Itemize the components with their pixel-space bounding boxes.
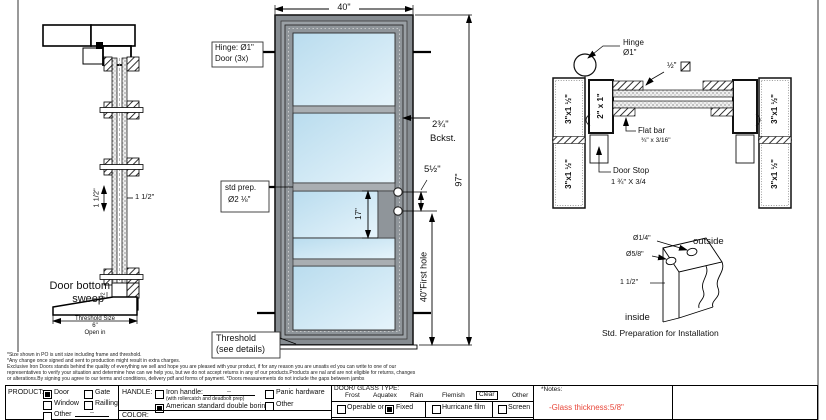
checkbox-iron-handle[interactable] — [155, 390, 164, 399]
handle-option-panic[interactable]: Panic hardware — [276, 389, 325, 396]
hinge-note-line2: Door (3x) — [215, 55, 248, 63]
checkbox-railing[interactable] — [84, 401, 93, 410]
product-option-other[interactable]: Other — [54, 411, 72, 418]
glass-subcell-divider — [425, 401, 426, 417]
checkbox-operable[interactable] — [337, 405, 346, 414]
hinge-dia: Ø1" — [623, 49, 637, 57]
side-dim: 1 1/2" — [135, 193, 154, 201]
frame-size-label: 3"x1 ½" — [565, 94, 573, 124]
handle-label: HANDLE: — [122, 389, 152, 396]
threshold-size-value: 6" — [55, 323, 135, 329]
backset-value: 2¾" — [432, 120, 449, 130]
door-stop-label: Door Stop — [613, 167, 649, 175]
glass-row-divider — [331, 401, 534, 402]
checkbox-panic-hardware[interactable] — [265, 390, 274, 399]
front-view — [212, 5, 472, 358]
width-dim: 40" — [330, 3, 358, 12]
hurricane-film-label[interactable]: Hurricane film — [442, 404, 485, 411]
glass-option-clear-selected[interactable]: Clear — [476, 391, 498, 400]
disclaimer-line: or alterations.By signing you agree to o… — [7, 377, 364, 383]
square-bar-size: ½" — [667, 62, 677, 70]
empty-cell — [672, 385, 818, 420]
checkbox-gate[interactable] — [84, 390, 93, 399]
glass-bottom-divider — [331, 417, 534, 418]
product-label: PRODUCT: — [8, 389, 44, 396]
glass-option-frost[interactable]: Frost — [345, 393, 360, 400]
threshold-note-line1: Threshold — [216, 334, 256, 343]
first-hole-dim: 40"First hole — [420, 252, 429, 302]
std-prep-line1: std prep. — [225, 184, 256, 192]
threshold-size-label: Threshold Size — [55, 316, 135, 322]
glass-subcell-divider — [492, 401, 493, 417]
product-option-window[interactable]: Window — [54, 400, 79, 407]
operable-label[interactable]: Operable or — [347, 404, 384, 411]
hole-small-dia: Ø1/4" — [633, 235, 651, 242]
sweep-label-2: sweep — [30, 294, 104, 306]
glass-thickness-note: -Glass thickness:5/8" — [549, 404, 624, 412]
product-other-line[interactable]: -- — [75, 411, 109, 417]
glass-option-aquatex[interactable]: Aquatex — [373, 393, 397, 400]
frame-size-label: 3"x1 ½" — [771, 159, 779, 189]
color-label: COLOR: — [122, 412, 149, 419]
checkbox-door[interactable] — [43, 390, 52, 399]
door-stop-size: 1 ¾" X 3/4 — [611, 178, 646, 186]
square-bar-icon — [681, 62, 690, 71]
frame-size-label: 3"x1 ½" — [565, 159, 573, 189]
color-row-divider — [118, 410, 332, 411]
hole-spacing-dim: 17" — [355, 208, 363, 220]
iron-handle-subnote: (with rollercatch and deadbolt prep) — [166, 397, 244, 402]
install-caption: Std. Preparation for Installation — [602, 329, 719, 338]
checkbox-screen[interactable] — [498, 405, 507, 414]
open-in-label: Open in — [55, 330, 135, 336]
lock-spacing-dim: 5½" — [424, 165, 441, 175]
inside-label: inside — [625, 313, 650, 323]
hole-large-dia: Ø5/8" — [626, 251, 644, 258]
glass-option-rain[interactable]: Rain — [410, 393, 423, 400]
handle-option-other[interactable]: Other — [276, 401, 294, 408]
frame-size-label: 3"x1 ½" — [771, 94, 779, 124]
std-prep-line2: Ø2 ⅛" — [228, 196, 250, 204]
checkbox-american-standard[interactable] — [155, 404, 164, 413]
product-option-railing[interactable]: Railling — [95, 400, 118, 407]
backset-label: Bckst. — [430, 134, 456, 144]
checkbox-hurricane-film[interactable] — [432, 405, 441, 414]
product-option-door[interactable]: Door — [54, 389, 69, 396]
outside-label: outside — [693, 237, 724, 247]
hinge-label: Hinge — [623, 39, 644, 47]
screen-label[interactable]: Screen — [508, 404, 530, 411]
offset-dim: 1 1/2" — [620, 279, 638, 286]
glass-option-other[interactable]: Other — [512, 393, 528, 400]
flat-bar-size: ¾" x 3/16" — [641, 138, 671, 145]
glass-option-flemish[interactable]: Flemish — [442, 393, 465, 400]
checkbox-fixed[interactable] — [385, 405, 394, 414]
threshold-note-line2: (see details) — [216, 345, 265, 354]
stile-size-label: 2" x 1" — [597, 93, 605, 118]
install-detail — [650, 238, 723, 322]
height-dim: 97" — [455, 173, 464, 186]
flat-bar-label: Flat bar — [638, 127, 665, 135]
sweep-dim: 1/2 — [102, 293, 107, 300]
checkbox-window[interactable] — [43, 401, 52, 410]
product-option-gate[interactable]: Gate — [95, 389, 110, 396]
drawing-sheet: 1 1/2" 1 1/2" Door bottom sweep 1/2 Thre… — [0, 0, 826, 420]
side-dim-rotated: 1 1/2" — [92, 188, 100, 207]
fixed-label[interactable]: Fixed — [396, 404, 413, 411]
checkbox-product-other[interactable] — [43, 412, 52, 420]
notes-label: *Notes: — [541, 387, 562, 394]
sweep-label-1: Door bottom — [30, 281, 110, 293]
hinge-note-line1: Hinge: Ø1" — [215, 44, 254, 52]
